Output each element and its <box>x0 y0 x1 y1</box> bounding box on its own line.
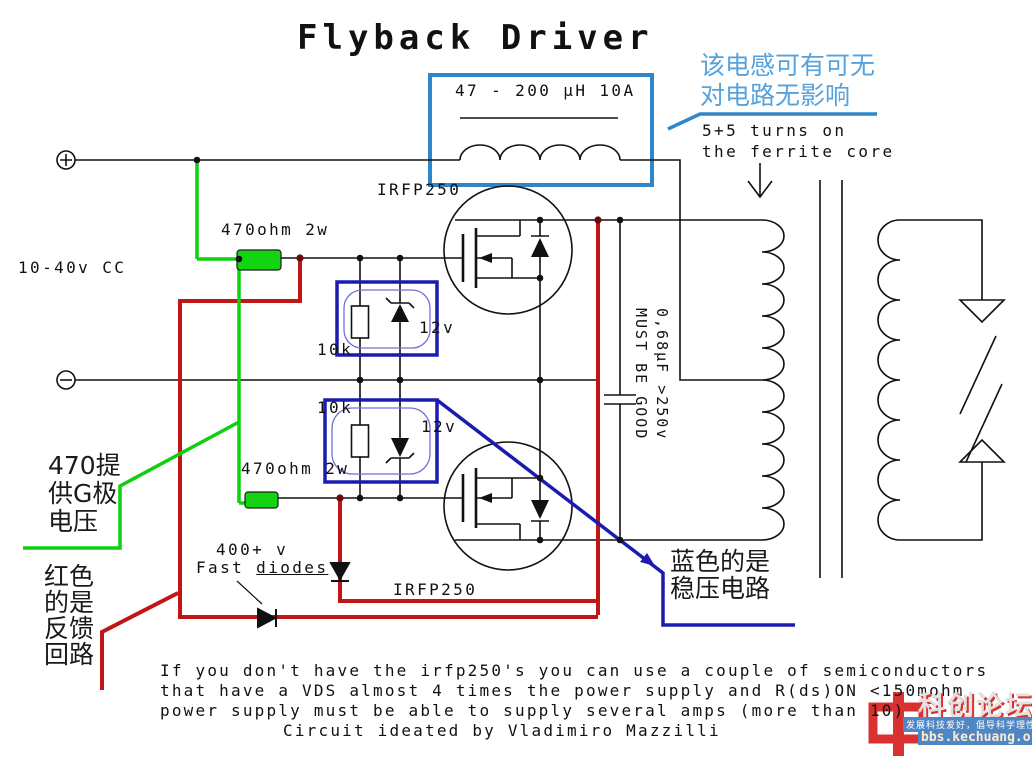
footer-note-line4: Circuit ideated by Vladimiro Mazzilli <box>283 721 721 741</box>
regulator-note-cn: 蓝色的是稳压电路 <box>670 548 770 602</box>
turns-note-line1: 5+5 turns on <box>702 121 846 140</box>
zener-bottom-label: 12v <box>421 417 457 436</box>
inductor-note-cn-line1: 该电感可有可无 <box>700 51 875 80</box>
cap-spec-label: 0,68μF >250vMUST BE GOOD <box>630 308 672 538</box>
turns-note-line2: the ferrite core <box>702 142 895 161</box>
footer-note-line2: that have a VDS almost 4 times the power… <box>160 681 965 701</box>
feedback-note-cn-line1: 红色 <box>44 562 94 591</box>
turns-note: 5+5 turns onthe ferrite core <box>702 120 895 162</box>
gate-resistor-bottom-label: 470ohm 2w <box>241 459 349 478</box>
junction-dots <box>194 157 624 544</box>
regulator-note-cn-line2: 稳压电路 <box>670 574 770 603</box>
footer-note-line1: If you don't have the irfp250's you can … <box>160 661 988 681</box>
feedback-note-cn-line2: 的是 <box>44 588 94 617</box>
r10k-bottom-label: 10k <box>317 398 353 417</box>
feedback-note-cn-line4: 回路 <box>44 640 94 669</box>
feedback-note-cn-line3: 反馈 <box>44 614 94 643</box>
black-wires <box>57 118 1004 604</box>
mosfet-top-label: IRFP250 <box>377 180 461 199</box>
flyback-driver-schematic: Flyback Driver 47 - 200 μH 10A 该电感可有可无对电… <box>0 0 1032 760</box>
inductor-note-cn-line2: 对电路无影响 <box>700 81 850 110</box>
mosfet-diodes <box>391 238 549 519</box>
regulator-note-cn-line1: 蓝色的是 <box>670 547 770 576</box>
gate-note-cn: 470提供G极电压 <box>48 452 121 536</box>
supply-label: 10-40v CC <box>18 258 126 277</box>
page-title: Flyback Driver <box>297 18 654 58</box>
fast-diodes-label: Fast diodes <box>196 558 328 577</box>
fast-diodes-word1: Fast <box>196 558 256 577</box>
gate-note-cn-line2: 供G极 <box>48 479 117 508</box>
footer-note-line3: power supply must be able to supply seve… <box>160 701 905 721</box>
regulator-blobs <box>332 290 430 474</box>
inductor-note-cn: 该电感可有可无对电路无影响 <box>700 51 875 111</box>
zener-top-label: 12v <box>419 318 455 337</box>
gate-note-cn-line3: 电压 <box>48 507 98 536</box>
fast-diode-volts-label: 400+ v <box>216 540 288 559</box>
feedback-note-cn: 红色的是反馈回路 <box>44 564 94 668</box>
cap-spec-line1: 0,68μF >250v <box>651 308 672 538</box>
mosfet-bottom-label: IRFP250 <box>393 580 477 599</box>
gate-note-cn-line1: 470提 <box>48 451 121 480</box>
cap-spec-line2: MUST BE GOOD <box>630 308 651 538</box>
watermark-url: bbs.kechuang.org <box>918 730 1032 745</box>
gate-resistor-top-label: 470ohm 2w <box>221 220 329 239</box>
inductor-value-label: 47 - 200 μH 10A <box>455 81 636 100</box>
schematic-canvas <box>0 0 1032 760</box>
r10k-top-label: 10k <box>317 340 353 359</box>
fast-diodes-word2: diodes <box>256 558 328 577</box>
